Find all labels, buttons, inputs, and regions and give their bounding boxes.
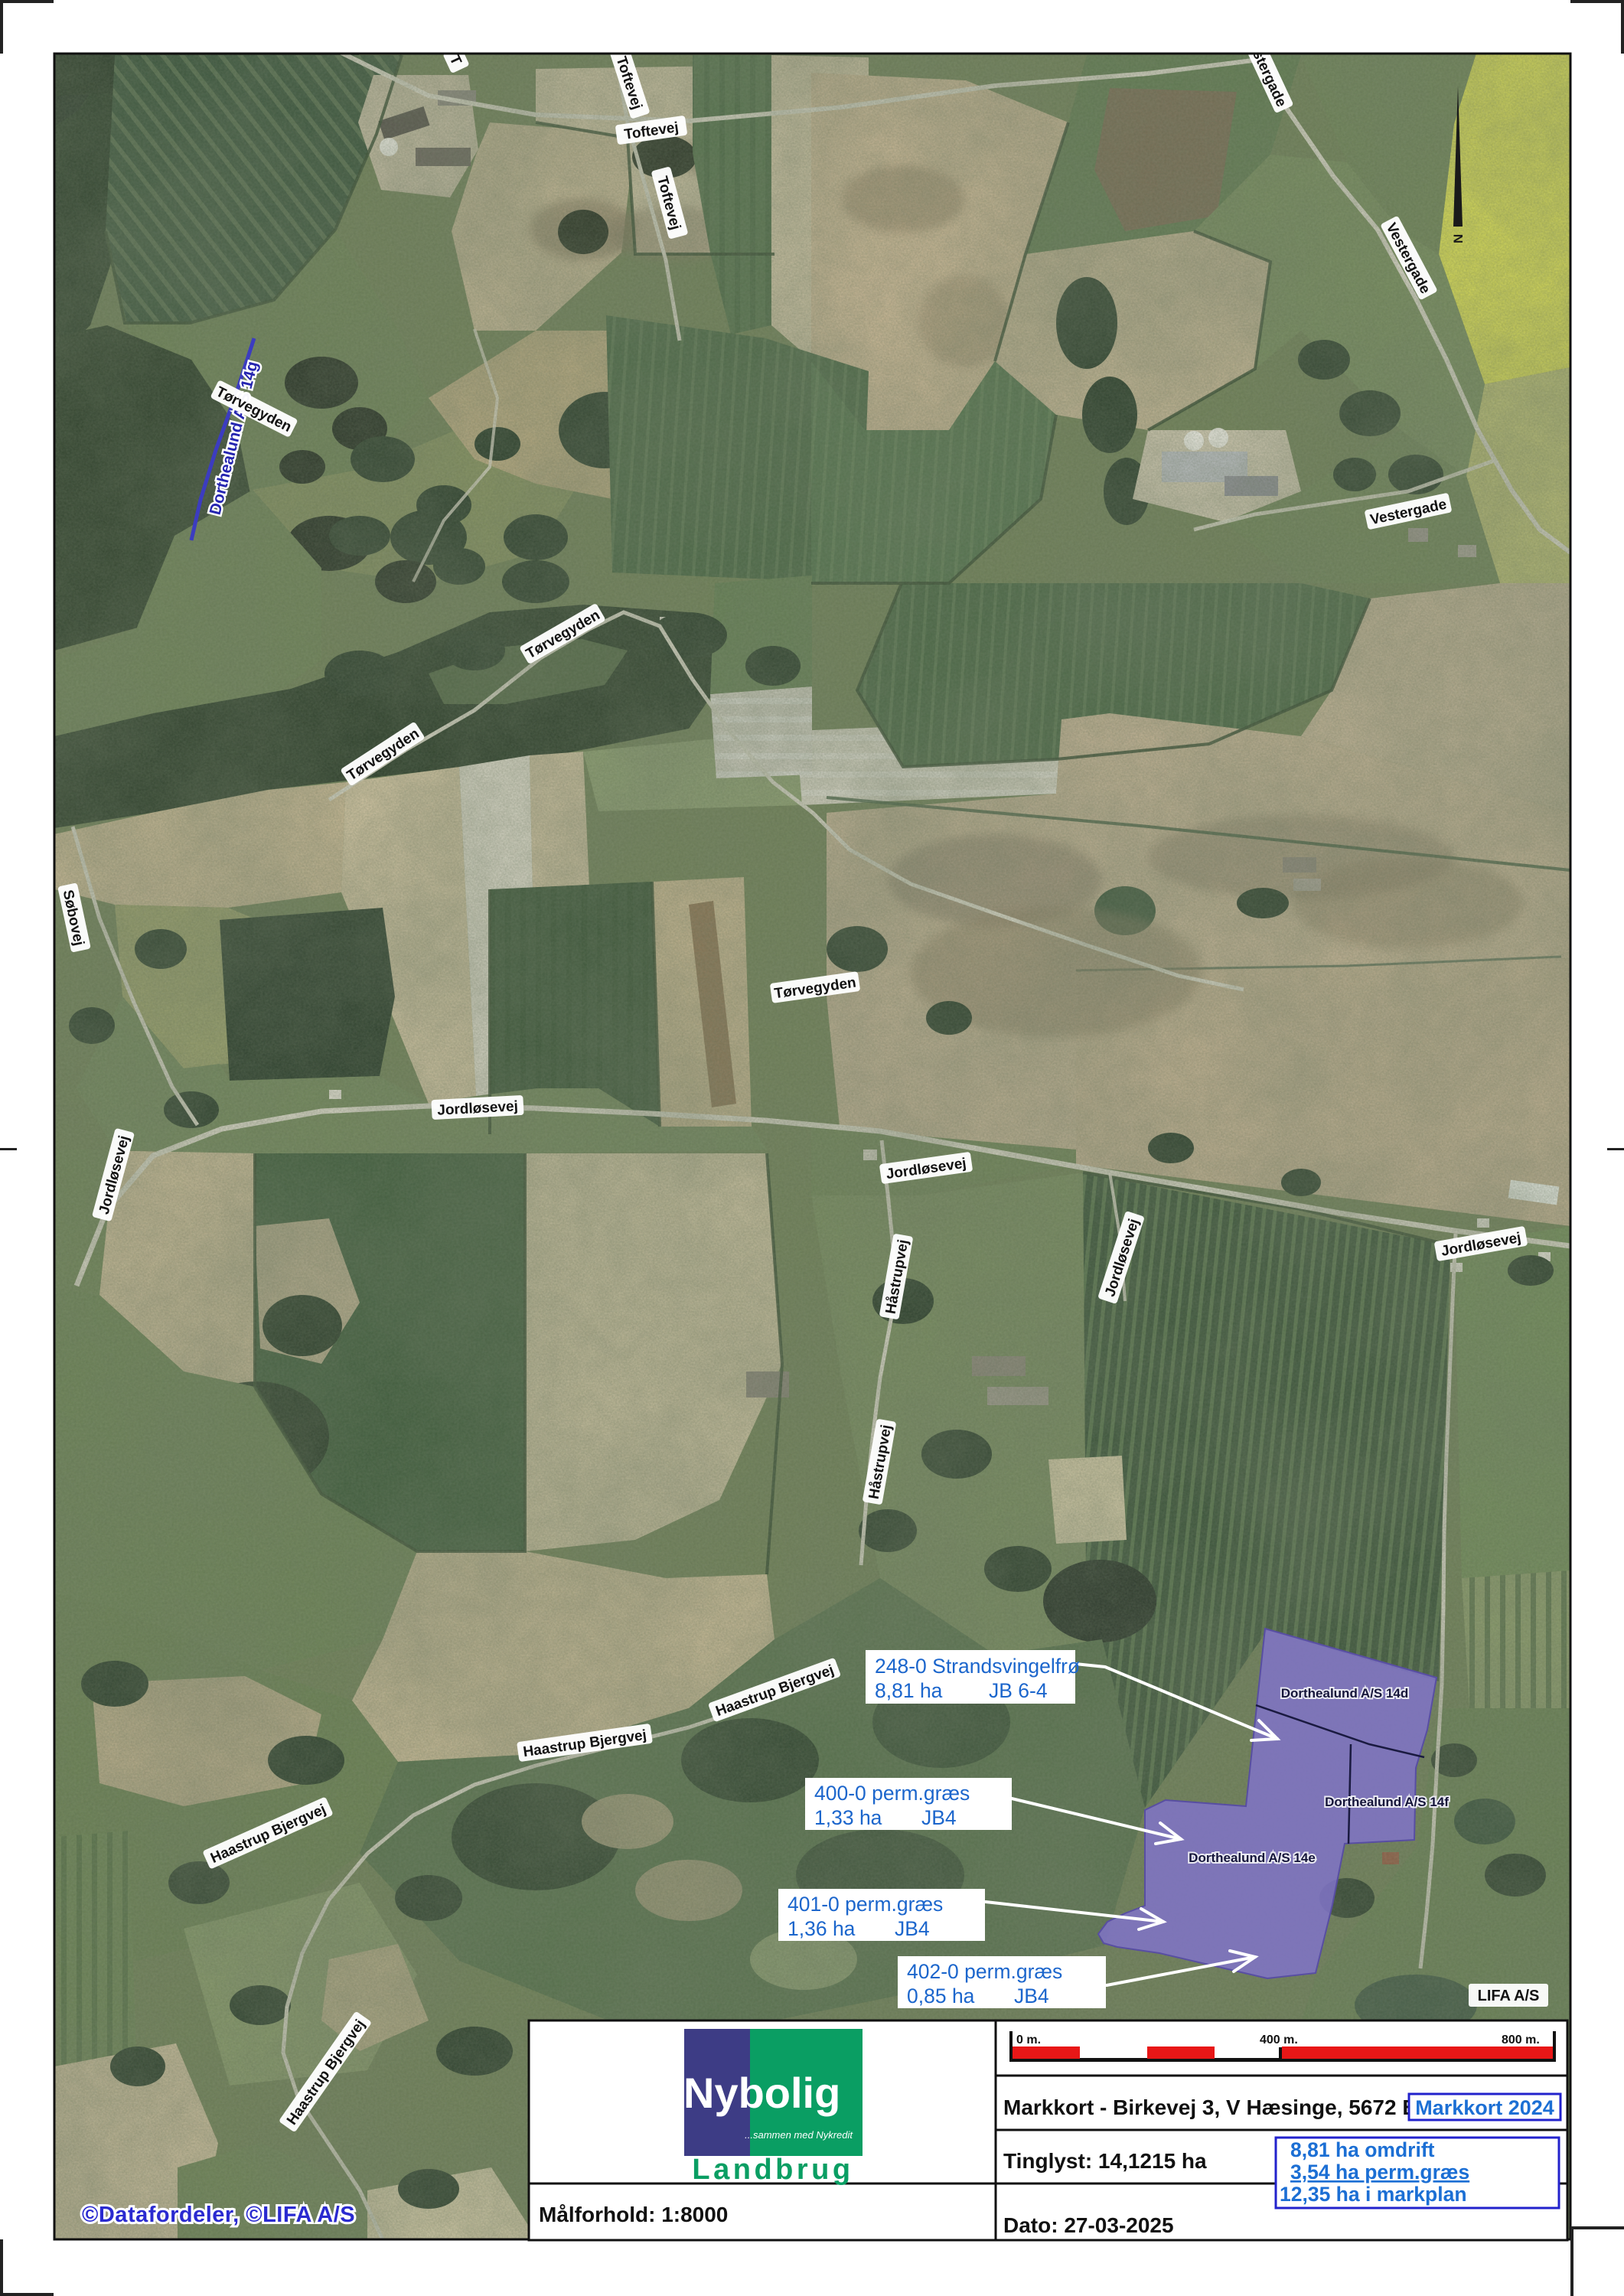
svg-text:0 m.: 0 m.: [1016, 2033, 1041, 2047]
svg-text:Dato: 27-03-2025: Dato: 27-03-2025: [1003, 2213, 1174, 2237]
svg-text:...sammen med Nykredit: ...sammen med Nykredit: [745, 2129, 853, 2141]
svg-text:JB4: JB4: [895, 1917, 930, 1940]
svg-text:402-0 perm.græs: 402-0 perm.græs: [907, 1960, 1062, 1983]
svg-text:Nybolig: Nybolig: [683, 2069, 840, 2117]
svg-text:800 m.: 800 m.: [1502, 2033, 1540, 2047]
svg-text:N: N: [1451, 234, 1466, 243]
svg-text:Markkort 2024: Markkort 2024: [1415, 2096, 1554, 2119]
svg-text:Dorthealund A/S 14f: Dorthealund A/S 14f: [1325, 1795, 1449, 1809]
svg-text:JB4: JB4: [921, 1806, 957, 1829]
svg-text:400 m.: 400 m.: [1260, 2033, 1298, 2047]
svg-text:12,35 ha i markplan: 12,35 ha i markplan: [1280, 2183, 1467, 2206]
svg-text:LIFA A/S: LIFA A/S: [1478, 1988, 1540, 2004]
svg-text:1,36 ha: 1,36 ha: [788, 1917, 856, 1940]
svg-text:Tinglyst: 14,1215 ha: Tinglyst: 14,1215 ha: [1003, 2149, 1207, 2173]
svg-text:JB4: JB4: [1014, 1985, 1049, 2007]
svg-text:8,81 ha omdrift: 8,81 ha omdrift: [1290, 2138, 1435, 2161]
svg-text:3,54 ha perm.græs: 3,54 ha perm.græs: [1290, 2161, 1469, 2183]
svg-text:1,33 ha: 1,33 ha: [814, 1806, 882, 1829]
svg-text:Dorthealund A/S 14d: Dorthealund A/S 14d: [1281, 1686, 1409, 1701]
svg-text:401-0 perm.græs: 401-0 perm.græs: [788, 1893, 943, 1916]
svg-text:Landbrug: Landbrug: [692, 2154, 853, 2186]
svg-text:248-0 Strandsvingelfrø: 248-0 Strandsvingelfrø: [875, 1655, 1080, 1678]
svg-text:Målforhold: 1:8000: Målforhold: 1:8000: [539, 2203, 728, 2226]
svg-text:400-0 perm.græs: 400-0 perm.græs: [814, 1782, 970, 1805]
svg-text:Markkort - Birkevej 3, V Hæsin: Markkort - Birkevej 3, V Hæsinge, 5672 B: [1003, 2095, 1418, 2119]
svg-text:0,85 ha: 0,85 ha: [907, 1985, 975, 2007]
svg-text:Dorthealund A/S 14e: Dorthealund A/S 14e: [1189, 1851, 1316, 1865]
svg-text:©Datafordeler, ©LIFA A/S: ©Datafordeler, ©LIFA A/S: [82, 2203, 355, 2227]
svg-text:8,81 ha: 8,81 ha: [875, 1679, 943, 1702]
svg-text:JB 6-4: JB 6-4: [989, 1679, 1048, 1702]
